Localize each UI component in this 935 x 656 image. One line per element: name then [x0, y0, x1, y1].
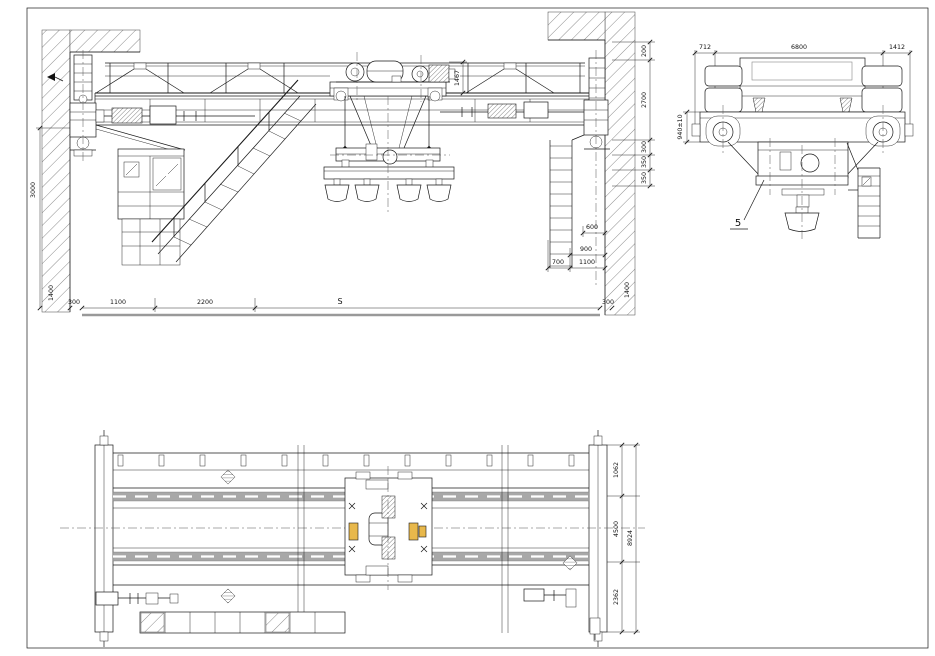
dim-width: 6800	[791, 44, 807, 51]
railing-stay-cone	[466, 63, 554, 93]
dim-wheel-height: 940±10	[677, 114, 684, 139]
dim-right-a: 300	[641, 141, 648, 153]
access-ladder-right	[550, 135, 584, 268]
dim-span: S	[337, 297, 342, 306]
magnet	[355, 179, 379, 202]
dim-left-overhang: 712	[699, 44, 711, 51]
end-view: 712 6800 1412	[677, 44, 913, 240]
callout-magnet: 5	[730, 180, 764, 229]
plan-travel-drive-left	[96, 592, 178, 605]
magnet	[397, 179, 421, 202]
plan-railing-posts	[118, 455, 574, 466]
dim-rail-left: 1400	[48, 285, 55, 301]
railing-stay-cone	[96, 63, 184, 93]
dim-hook-a: 600	[586, 224, 598, 231]
dim-cab-a: 1100	[110, 299, 126, 306]
dim-right-wall: 2700	[641, 92, 648, 108]
magnet	[427, 179, 451, 202]
hook-pulley	[383, 150, 397, 164]
dim-right-c: 350	[641, 172, 648, 184]
plan-view-dimensions: 1062 4500 2362 8924	[607, 443, 640, 634]
plan-travel-drive-right	[524, 589, 600, 640]
highlight-block	[349, 523, 358, 540]
trolley	[330, 52, 455, 102]
end-view-magnet-frame	[728, 138, 878, 240]
crane-drawing: 3000 300 1100 2200 S 300 1400 1400 1467 …	[0, 0, 935, 656]
hoist-drum	[346, 63, 364, 81]
callout-label: 5	[735, 218, 741, 229]
building-wall-right	[548, 12, 635, 315]
front-elevation-view: 3000 300 1100 2200 S 300 1400 1400 1467 …	[30, 12, 655, 315]
dim-trolley-height: 1467	[454, 70, 461, 86]
highlight-block	[409, 523, 418, 540]
dim-walkway: 1062	[613, 462, 620, 478]
dim-hook-c: 700	[552, 259, 564, 266]
plan-platform	[140, 612, 345, 633]
highlight-block	[419, 526, 426, 537]
hoist-motor	[429, 65, 449, 82]
dim-overall-width: 8924	[627, 530, 634, 546]
dim-wall-height: 3000	[30, 182, 37, 198]
dim-right-b: 350	[641, 156, 648, 168]
drive-unit-left	[96, 106, 255, 124]
plan-end-carriage-left	[95, 430, 113, 647]
dim-floor-right-offset: 300	[602, 299, 614, 306]
dim-lower: 2362	[613, 589, 620, 605]
dim-rail-right: 1400	[624, 282, 631, 298]
cab-window	[153, 158, 181, 190]
dim-hook-d: 1100	[579, 259, 595, 266]
drawing-sheet: 3000 300 1100 2200 S 300 1400 1400 1467 …	[0, 0, 935, 656]
plan-trolley	[345, 466, 432, 590]
dim-right-overhang: 1412	[889, 44, 905, 51]
end-view-trolley-top	[705, 58, 902, 112]
dim-rail-gauge: 4500	[613, 521, 620, 537]
end-truck-left	[70, 50, 96, 162]
dim-cab-b: 2200	[197, 299, 213, 306]
plan-end-carriage-right	[589, 430, 607, 647]
magnet	[325, 179, 349, 202]
plan-view: 1062 4500 2362 8924	[60, 430, 645, 647]
operator-cab	[96, 125, 185, 265]
dim-hook-b: 900	[580, 246, 592, 253]
dim-right-top: 200	[641, 45, 648, 57]
railing-stay-cone	[210, 63, 298, 93]
spreader-beam	[324, 167, 454, 179]
dim-floor-left-offset: 300	[68, 299, 80, 306]
